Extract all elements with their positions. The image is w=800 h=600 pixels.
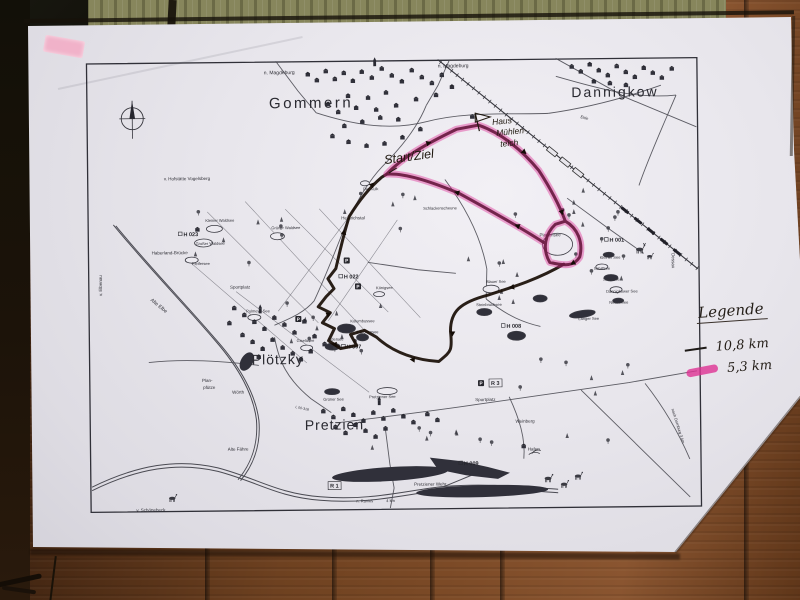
tree-icon [539, 357, 543, 363]
tree-icon [621, 370, 624, 375]
place-label: Pulmeys See [246, 308, 270, 313]
place-label: Kolumbussee [350, 318, 375, 323]
place-label: Grüner See [323, 397, 345, 402]
tree-icon [478, 437, 482, 443]
legend-distance: 10,8 km [715, 336, 769, 355]
tree-icon [626, 363, 630, 369]
pink-route-swatch [686, 363, 719, 377]
legend-item-short-route: 5,3 km [686, 356, 800, 379]
tree-icon [429, 431, 433, 437]
place-label: Kleiner See [600, 255, 622, 260]
map-labels: GommernDannigkowPlötzkyPretzienn. Magdeb… [96, 61, 687, 513]
tree-icon [417, 426, 421, 432]
tree-icon [581, 188, 584, 193]
place-label: Großer Waldsee [196, 241, 226, 246]
printed-map: GommernDannigkowPlötzkyPretzienn. Magdeb… [86, 57, 703, 513]
building-icon [591, 79, 596, 84]
place-label: Blauer See [486, 279, 507, 284]
wetlands [236, 347, 548, 501]
haus-muehlenteich-annotation: Haus [492, 115, 513, 127]
building-icon [260, 346, 265, 351]
stick [167, 0, 176, 27]
tree-icon [197, 210, 201, 216]
building-icon [262, 326, 267, 331]
svg-text:H 022: H 022 [344, 274, 359, 280]
tree-icon [606, 226, 610, 232]
building-icon [314, 78, 319, 83]
place-label: L 00-318 [295, 405, 309, 412]
building-icon [382, 141, 387, 146]
place-label: Königsee [376, 285, 394, 290]
dark-left-edge [0, 0, 30, 600]
place-label: n. Ranies [356, 498, 373, 503]
tree-icon [413, 195, 416, 200]
legend-distance: 5,3 km [727, 358, 773, 376]
animal-icon [545, 474, 554, 482]
building-icon [435, 417, 440, 422]
animal-icon [575, 472, 583, 480]
parking-icon: P [344, 257, 350, 264]
building-icon [305, 72, 310, 77]
building-icon [369, 75, 374, 80]
place-label: Haberland-Brücke [152, 250, 189, 255]
building-icon [272, 315, 277, 320]
tree-icon [311, 315, 315, 321]
building-icon [413, 97, 418, 102]
place-label: Weinberg [515, 419, 535, 424]
animal-icon [561, 480, 569, 488]
place-label: Plan- [202, 378, 213, 383]
building-icon [429, 80, 434, 85]
building-icon [342, 123, 347, 128]
place-label: Langer See [578, 316, 600, 321]
tree-icon [502, 259, 505, 264]
building-icon [195, 227, 200, 232]
animal-icon [647, 253, 654, 259]
parking-icon: P [295, 316, 301, 323]
tree-icon [515, 272, 518, 277]
building-icon [409, 68, 414, 73]
place-label: 4 km [386, 498, 395, 503]
tree-icon [572, 209, 575, 214]
tree-icon [497, 261, 501, 267]
tree-icon [285, 301, 289, 307]
place-label: Steinbruchsee [476, 302, 502, 307]
tree-icon [498, 295, 501, 300]
roads [146, 57, 701, 511]
building-icon [641, 65, 646, 70]
place-label: nach Dornburg 3 km [670, 408, 686, 445]
building-icon [374, 107, 379, 112]
building-icon [232, 305, 237, 310]
building-icon [378, 115, 383, 120]
building-icon [419, 74, 424, 79]
building-icon [587, 62, 592, 67]
place-label: Alte Elbe [149, 297, 168, 314]
place-label: Heinrichstal [341, 215, 365, 220]
building-icon [341, 406, 346, 411]
tree-icon [371, 445, 374, 450]
building-icon [623, 69, 628, 74]
building-icon [364, 143, 369, 148]
building-icon [393, 103, 398, 108]
trail-marker: H 023 [178, 232, 198, 238]
tree-icon [391, 201, 394, 206]
place-label: Neuer See [609, 300, 629, 305]
building-icon [383, 90, 388, 95]
tree-icon [256, 219, 259, 224]
tree-icon [315, 325, 318, 330]
route-black-ink [317, 172, 565, 363]
place-label: v. Elbenau [98, 275, 103, 296]
place-label: Schilfsee [594, 266, 611, 271]
place-label: Grüner Waldsee [271, 225, 301, 230]
building-icon [330, 133, 335, 138]
start-ziel-annotation: Start/Ziel [383, 146, 436, 167]
building-icon [282, 322, 287, 327]
tree-icon [594, 390, 597, 395]
place-label: n. Magdeburg [264, 70, 295, 76]
haus-muehlenteich-annotation: Mühlen- [496, 125, 528, 138]
place-label: pfütze [203, 385, 216, 390]
place-label: Dessau [671, 253, 676, 269]
building-icon [373, 434, 378, 439]
building-icon [396, 117, 401, 122]
building-icon [418, 126, 423, 131]
building-icon [250, 339, 255, 344]
building-icon [321, 409, 326, 414]
town-label: Dannigkow [571, 83, 658, 100]
tree-icon [514, 212, 518, 218]
legend-title: Legende [696, 299, 769, 324]
place-label: n. Magdeburg [438, 63, 469, 69]
trail-marker: H 001 [605, 237, 625, 243]
building-icon [391, 408, 396, 413]
tree-icon [581, 222, 584, 227]
building-icon [433, 92, 438, 97]
tree-icon [565, 433, 568, 438]
building-icon [371, 410, 376, 415]
tree-icon [343, 209, 346, 214]
building-icon [365, 95, 370, 100]
building-icon [350, 78, 355, 83]
tree-icon [590, 375, 593, 380]
building-icon [614, 63, 619, 68]
place-label: Pretziener See [369, 394, 396, 399]
parking-icon: P [478, 380, 484, 387]
building-icon [240, 332, 245, 337]
place-label: Ehle [580, 114, 590, 121]
trail-marker: H 022 [339, 274, 359, 280]
building-icon [360, 119, 365, 124]
tree-icon [401, 193, 405, 199]
building-icon [346, 139, 351, 144]
photo-of-route-map-on-wooden-wall: GommernDannigkowPlötzkyPretzienn. Magdeb… [0, 0, 800, 600]
tree-icon [280, 217, 283, 222]
tree-icon [454, 429, 457, 434]
svg-text:H 009: H 009 [464, 461, 479, 467]
handwritten-annotations: Start/ZielHausMühlen-teich [383, 113, 528, 174]
tree-icon [590, 269, 594, 275]
building-icon [227, 320, 232, 325]
map-sheet-paper: GommernDannigkowPlötzkyPretzienn. Magdeb… [0, 0, 800, 600]
tree-icon [606, 438, 610, 444]
place-label: v. Hofstätte Vogelsberg [164, 176, 211, 181]
building-icon [280, 345, 285, 350]
building-icon [341, 70, 346, 75]
building-icon [632, 74, 637, 79]
svg-text:H 008: H 008 [506, 324, 521, 330]
parking-icon: P [355, 283, 361, 290]
place-label: Pfeifersee [192, 261, 211, 266]
place-label: Schlackenscheune [423, 205, 457, 210]
tree-icon [425, 436, 428, 441]
building-icon [569, 64, 574, 69]
place-label: Dannigkower See [606, 288, 638, 293]
svg-text:R 3: R 3 [491, 381, 500, 387]
trail-marker: R 3 [489, 379, 502, 387]
building-icon [359, 69, 364, 74]
place-label: Wörth [232, 390, 245, 395]
place-label: Sportplatz [475, 397, 496, 402]
place-label: Silbersee [603, 277, 621, 282]
town-label: Plötzky [252, 351, 304, 368]
building-icon [323, 68, 328, 73]
tree-icon [194, 251, 197, 256]
animal-icon [636, 243, 646, 253]
building-icon [650, 70, 655, 75]
tree-icon [613, 215, 617, 221]
building-icon [332, 76, 337, 81]
church-icon [373, 57, 377, 66]
building-icon [425, 411, 430, 416]
tree-icon [564, 360, 568, 366]
tree-icon [600, 237, 604, 243]
building-icon [596, 68, 601, 73]
legend-item-long-route: 10,8 km [684, 334, 799, 357]
tree-icon [398, 227, 402, 233]
building-icon [449, 84, 454, 89]
place-label: Kleiner Waldsee [205, 218, 235, 223]
place-label: Pretziener Wehr [414, 481, 447, 486]
haus-muehlenteich-annotation: teich [500, 137, 519, 149]
compass-rose-icon [119, 101, 145, 139]
tree-icon [616, 210, 620, 216]
building-icon [322, 342, 327, 347]
building-icon [605, 73, 610, 78]
place-label: Giselasee [297, 338, 316, 343]
building-icon [292, 330, 297, 335]
place-label: Alte Fähre [228, 447, 249, 452]
building-icon [669, 66, 674, 71]
building-icon [659, 75, 664, 80]
tree-icon [622, 254, 626, 260]
tree-icon [290, 338, 293, 343]
tree-icon [467, 256, 470, 261]
hand-drawn-route [316, 124, 582, 364]
svg-text:H 001: H 001 [610, 238, 625, 244]
town-label: Pretzien [305, 416, 365, 433]
trail-marker: H 008 [501, 323, 521, 329]
animal-drawings [166, 243, 656, 502]
tree-icon [247, 261, 251, 267]
building-icon [399, 79, 404, 84]
building-icon [578, 69, 583, 74]
animal-icon [169, 494, 177, 502]
map-drawing: GommernDannigkowPlötzkyPretzienn. Magdeb… [86, 57, 703, 513]
tree-icon [518, 385, 522, 391]
building-icon [411, 420, 416, 425]
town-label: Gommern [269, 94, 353, 112]
building-icon [400, 135, 405, 140]
place-label: Sportplatz [230, 284, 251, 289]
black-route-swatch [685, 346, 707, 351]
building-icon [521, 443, 526, 448]
tree-icon [620, 276, 623, 281]
building-icon [354, 105, 359, 110]
place-label: Hafen [528, 446, 541, 451]
building-icon [383, 426, 388, 431]
tree-icon [335, 310, 338, 315]
tree-icon [490, 440, 494, 446]
svg-text:R 1: R 1 [330, 484, 339, 490]
legend: Legende 10,8 km 5,3 km [682, 296, 800, 379]
place-label: v. Schönebeck [136, 507, 166, 512]
building-icon [389, 73, 394, 78]
trail-marker: R 1 [328, 482, 341, 490]
svg-text:H 023: H 023 [183, 232, 198, 238]
building-icon [379, 66, 384, 71]
rivers [89, 220, 558, 504]
tree-icon [511, 299, 514, 304]
